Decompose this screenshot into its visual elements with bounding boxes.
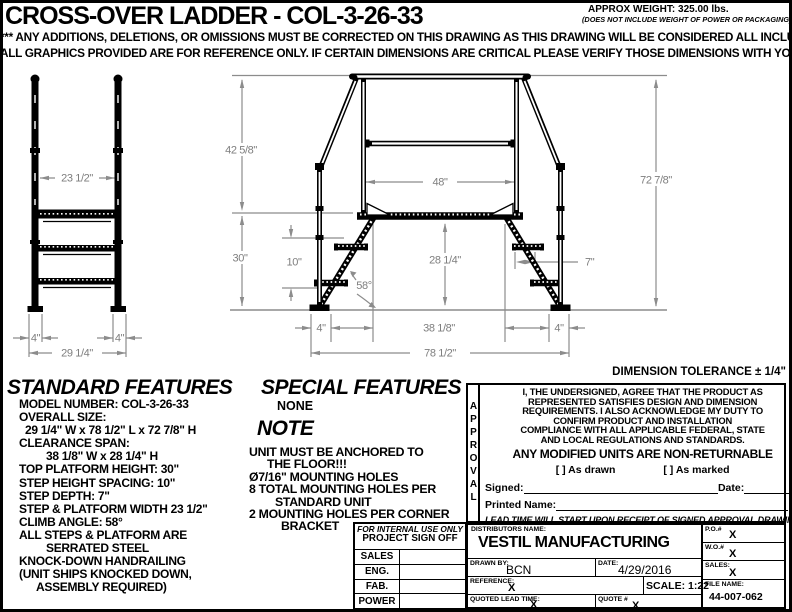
feature-line: TOP PLATFORM HEIGHT: 30" [19, 463, 208, 476]
special-features-title: SPECIAL FEATURES [261, 376, 461, 400]
sales-value: X [729, 567, 736, 579]
note-line: 2 MOUNTING HOLES PER CORNER [249, 508, 449, 520]
sign-off-cell[interactable] [400, 580, 465, 594]
file-name-value: 44-007-062 [709, 591, 763, 603]
po-label: P.O.# [705, 526, 722, 533]
dim-front-foot-left: 4" [31, 333, 41, 345]
feature-line: STEP & PLATFORM WIDTH 23 1/2" [19, 503, 208, 516]
front-view-drawing [28, 75, 127, 313]
dim-side-foot-left: 4" [316, 323, 326, 335]
dim-step-depth: 7" [585, 257, 595, 269]
note-list: UNIT MUST BE ANCHORED TO THE FLOOR!!! Ø7… [249, 446, 449, 533]
approval-statement: AND LOCAL REGULATIONS AND STANDARDS. [485, 435, 792, 445]
distributors-name-label: DISTRIBUTORS NAME: [471, 526, 701, 533]
sign-off-cell[interactable] [400, 594, 465, 608]
disclaimer-line-2: ALL GRAPHICS PROVIDED ARE FOR REFERENCE … [0, 46, 792, 60]
scale-cell: SCALE: 1:22 [643, 576, 701, 594]
approx-weight: APPROX WEIGHT: 325.00 lbs. [588, 4, 729, 15]
reference-value: X [508, 582, 515, 594]
printed-name-label: Printed Name: [485, 499, 556, 511]
title-block: DISTRIBUTORS NAME: VESTIL MANUFACTURING … [466, 523, 786, 609]
drawn-by-label: DRAWN BY: [470, 560, 509, 567]
note-line: 8 TOTAL MOUNTING HOLES PER [249, 483, 449, 495]
dim-front-foot-right: 4" [115, 333, 125, 345]
project-sign-off-label: PROJECT SIGN OFF [355, 534, 465, 544]
side-view-drawing [310, 75, 571, 312]
quote-number-cell: QUOTE # X [595, 594, 701, 611]
quoted-lead-time-value: X [530, 599, 537, 611]
quote-number-value: X [632, 600, 639, 612]
drawing-sheet: 23 1/2" 4" 4" 29 1/4" 42 5/8" 30" 10" 58… [0, 0, 792, 612]
note-title: NOTE [257, 417, 313, 441]
feature-line: STEP DEPTH: 7" [19, 490, 208, 503]
feature-line: CLIMB ANGLE: 58° [19, 516, 208, 529]
front-foot-right [111, 306, 127, 312]
side-foot-right [551, 305, 571, 312]
sales-cell: SALES: X [701, 560, 785, 579]
disclaimer-line-1: *** ANY ADDITIONS, DELETIONS, OR OMISSIO… [0, 30, 792, 44]
dim-step-spacing: 10" [287, 257, 302, 269]
printed-name-line[interactable] [556, 499, 788, 511]
special-features-value: NONE [277, 399, 313, 413]
non-returnable-warning: ANY MODIFIED UNITS ARE NON-RETURNABLE [485, 447, 792, 461]
dimension-tolerance: DIMENSION TOLERANCE ± 1/4" [594, 366, 786, 378]
dim-clearance-span: 38 1/8" [423, 323, 455, 335]
quoted-lead-time-cell: QUOTED LEAD TIME: X [468, 594, 595, 611]
dim-platform-width: 48" [433, 177, 448, 189]
dim-upper-height: 42 5/8" [225, 145, 257, 157]
wo-label: W.O.# [705, 544, 724, 551]
date-label: DATE: [598, 560, 618, 567]
weight-note: (DOES NOT INCLUDE WEIGHT OF POWER OR PAC… [582, 15, 791, 24]
front-foot-left [28, 306, 44, 312]
feature-line: ASSEMBLY REQUIRED) [36, 581, 208, 594]
quote-number-label: QUOTE # [598, 596, 628, 603]
note-line: THE FLOOR!!! [267, 458, 449, 470]
dim-overall-length: 78 1/2" [424, 348, 456, 360]
approval-letters: APPROVAL [468, 401, 478, 505]
sign-off-label: FAB. [355, 580, 400, 594]
standard-features-list: MODEL NUMBER: COL-3-26-33 OVERALL SIZE: … [19, 398, 208, 594]
distributor-cell: DISTRIBUTORS NAME: VESTIL MANUFACTURING [468, 525, 701, 558]
date-line[interactable] [744, 482, 792, 494]
file-name-cell: FILE NAME: 44-007-062 [701, 579, 785, 607]
approval-vertical-label: APPROVAL [468, 385, 480, 521]
dim-platform-height: 30" [233, 253, 248, 265]
date-cell: DATE: 4/29/2016 [595, 558, 701, 576]
sign-off-row-power: POWER [355, 593, 465, 608]
checkbox-as-marked[interactable]: [ ] As marked [663, 464, 729, 476]
checkbox-as-drawn[interactable]: [ ] As drawn [556, 464, 616, 476]
project-sign-off-table: FOR INTERNAL USE ONLY PROJECT SIGN OFF S… [353, 522, 467, 610]
file-name-label: FILE NAME: [705, 581, 744, 588]
side-foot-left [310, 305, 330, 312]
date-label: Date: [718, 482, 744, 494]
reference-cell: REFERENCE: X [468, 576, 643, 594]
sign-off-row-sales: SALES [355, 549, 465, 564]
page-title: CROSS-OVER LADDER - COL-3-26-33 [5, 2, 423, 31]
front-view-steps [38, 212, 116, 288]
dim-overall-height: 72 7/8" [640, 175, 672, 187]
signed-line[interactable] [524, 482, 718, 494]
signed-label: Signed: [485, 482, 524, 494]
scale-value: SCALE: 1:22 [646, 580, 709, 592]
dimension-label-backgrounds [52, 143, 684, 359]
po-cell: P.O.# X [701, 525, 785, 542]
sales-label: SALES: [705, 562, 730, 569]
sign-off-row-eng: ENG. [355, 564, 465, 579]
sloped-handrails [315, 75, 565, 307]
date-value: 4/29/2016 [618, 563, 671, 577]
dim-front-overall-width: 29 1/4" [61, 348, 93, 360]
sign-off-row-fab: FAB. [355, 579, 465, 594]
approval-box: APPROVAL I, THE UNDERSIGNED, AGREE THAT … [466, 383, 786, 523]
sign-off-header: FOR INTERNAL USE ONLY PROJECT SIGN OFF [355, 524, 465, 549]
sign-off-cell[interactable] [400, 565, 465, 579]
dim-clearance-height: 28 1/4" [429, 255, 461, 267]
sign-off-label: ENG. [355, 565, 400, 579]
company-name: VESTIL MANUFACTURING [478, 534, 701, 552]
dim-climb-angle: 58° [356, 280, 371, 292]
wo-cell: W.O.# X [701, 542, 785, 560]
drawn-by-value: BCN [506, 563, 531, 577]
po-value: X [729, 529, 736, 541]
wo-value: X [729, 548, 736, 560]
dim-front-rail-width: 23 1/2" [61, 173, 93, 185]
feature-line: STEP HEIGHT SPACING: 10" [19, 477, 208, 490]
sign-off-label: POWER [355, 594, 400, 608]
dim-side-foot-right: 4" [554, 323, 564, 335]
sign-off-cell[interactable] [400, 550, 465, 564]
sign-off-label: SALES [355, 550, 400, 564]
drawn-by-cell: DRAWN BY: BCN [468, 558, 595, 576]
